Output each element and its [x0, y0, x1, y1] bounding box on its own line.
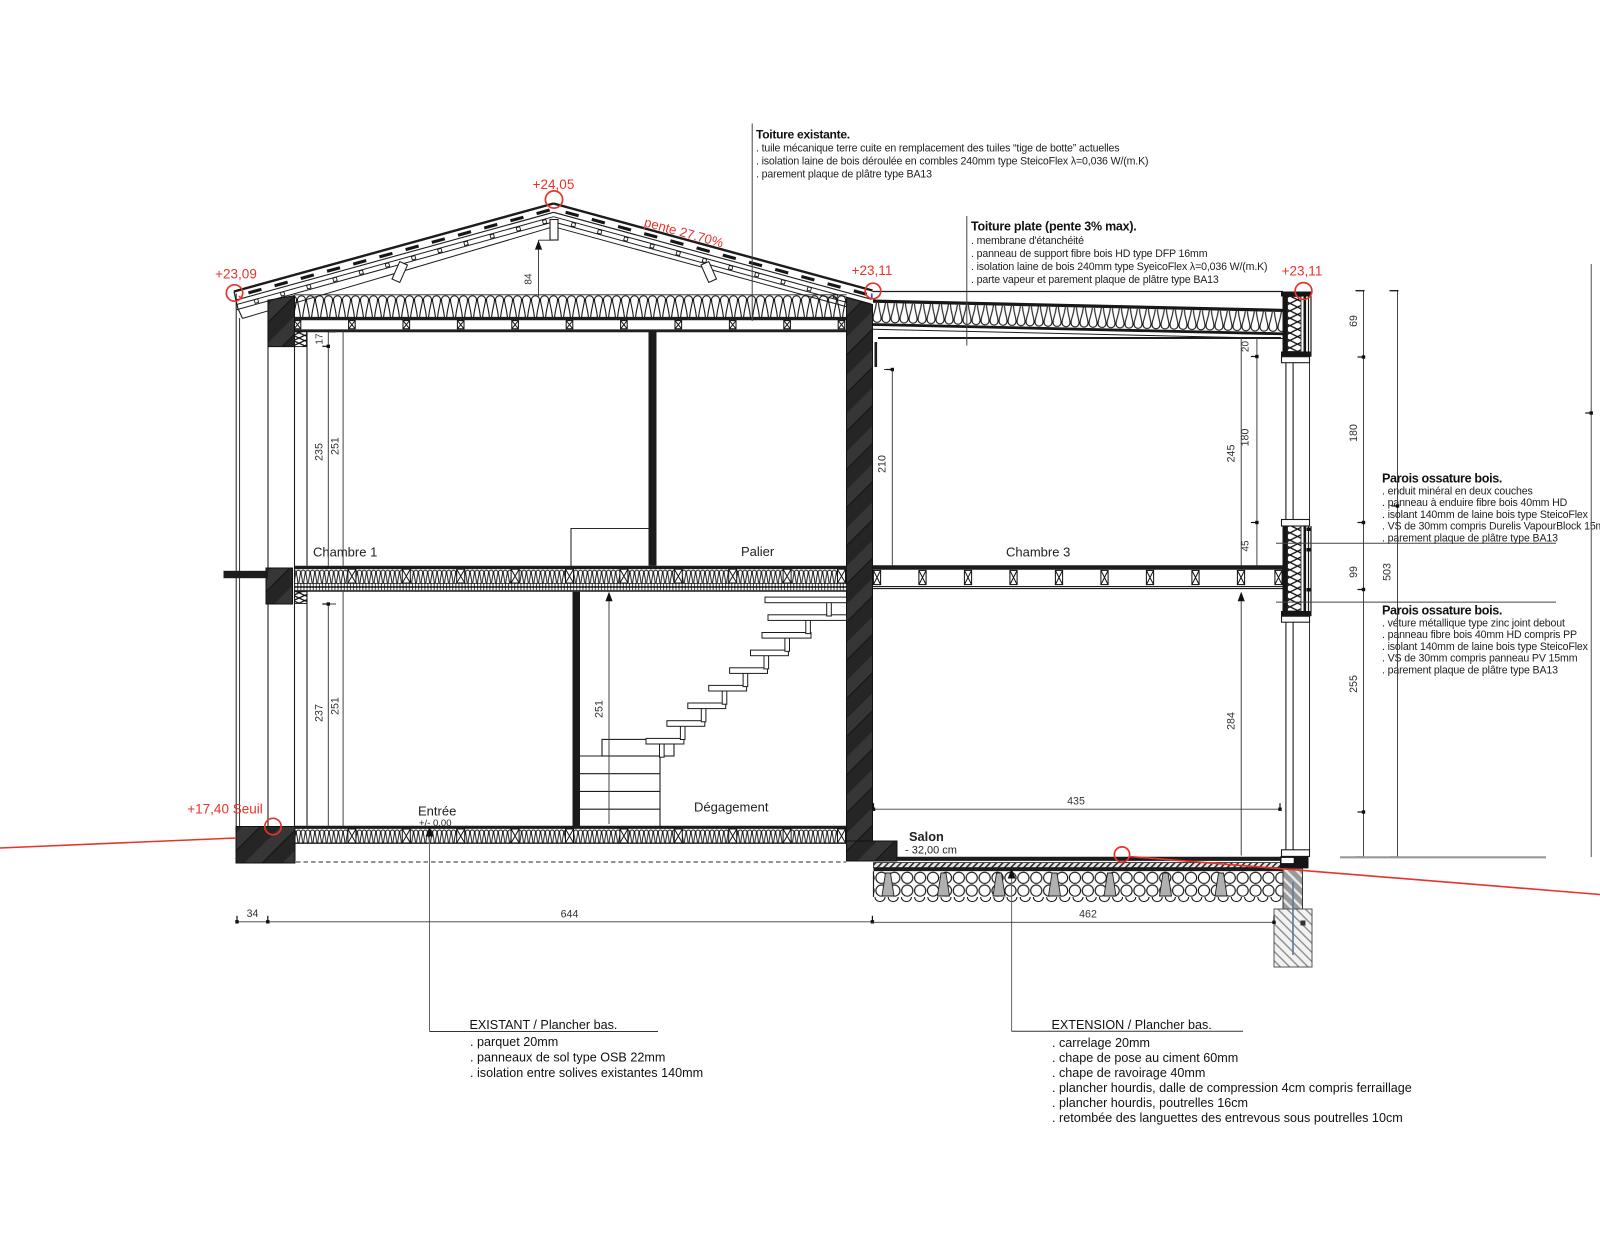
- svg-text:210: 210: [877, 455, 889, 473]
- svg-text:. tuile mécanique terre cuite: . tuile mécanique terre cuite en remplac…: [756, 143, 1119, 155]
- svg-text:Chambre 3: Chambre 3: [1006, 545, 1070, 560]
- svg-text:Salon: Salon: [909, 829, 944, 844]
- svg-text:. parement plaque de plâtre ty: . parement plaque de plâtre type BA13: [1382, 664, 1558, 676]
- svg-text:255: 255: [1348, 675, 1360, 693]
- svg-text:Palier: Palier: [741, 544, 775, 559]
- svg-text:. véture métallique type zinc: . véture métallique type zinc joint debo…: [1382, 618, 1565, 630]
- svg-text:. carrelage 20mm: . carrelage 20mm: [1052, 1036, 1150, 1050]
- svg-text:462: 462: [1079, 909, 1097, 921]
- svg-text:Toiture plate (pente 3% max).: Toiture plate (pente 3% max).: [971, 220, 1136, 234]
- svg-text:. membrane d'étanchéité: . membrane d'étanchéité: [971, 235, 1084, 247]
- svg-text:34: 34: [247, 908, 259, 920]
- svg-text:69: 69: [1348, 315, 1360, 327]
- svg-text:+23,11: +23,11: [852, 263, 893, 278]
- svg-text:284: 284: [1226, 712, 1238, 730]
- svg-text:Toiture existante.: Toiture existante.: [756, 128, 850, 142]
- svg-text:Chambre 1: Chambre 1: [313, 545, 377, 560]
- svg-text:Dégagement: Dégagement: [694, 800, 769, 815]
- svg-text:180: 180: [1348, 424, 1360, 442]
- svg-text:. chape de ravoirage 40mm: . chape de ravoirage 40mm: [1052, 1066, 1205, 1080]
- svg-text:99: 99: [1348, 566, 1360, 578]
- svg-text:+17,40 Seuil: +17,40 Seuil: [187, 802, 262, 817]
- svg-text:. enduit minéral en deux couch: . enduit minéral en deux couches: [1382, 486, 1533, 498]
- svg-text:. panneau fibre bois 40mm HD c: . panneau fibre bois 40mm HD compris PP: [1382, 629, 1577, 641]
- svg-text:. isolation entre solives exis: . isolation entre solives existantes 140…: [470, 1066, 703, 1080]
- svg-text:. isolant 140mm de laine bois: . isolant 140mm de laine bois type Steic…: [1382, 509, 1589, 521]
- svg-text:. plancher hourdis, dalle de c: . plancher hourdis, dalle de compression…: [1052, 1081, 1412, 1095]
- svg-text:. parement plaque de plâtre ty: . parement plaque de plâtre type BA13: [1382, 532, 1558, 544]
- svg-text:237: 237: [314, 704, 326, 722]
- svg-text:435: 435: [1067, 796, 1085, 808]
- svg-text:251: 251: [329, 437, 341, 455]
- svg-text:. parquet 20mm: . parquet 20mm: [470, 1035, 558, 1049]
- svg-text:251: 251: [329, 697, 341, 715]
- svg-text:. panneau à enduire fibre bois: . panneau à enduire fibre bois 40mm HD: [1382, 497, 1568, 509]
- svg-text:+23,09: +23,09: [215, 267, 257, 282]
- svg-text:EXISTANT / Plancher bas.: EXISTANT / Plancher bas.: [470, 1018, 618, 1032]
- svg-text:. plancher hourdis, poutrelles: . plancher hourdis, poutrelles 16cm: [1052, 1096, 1248, 1110]
- svg-text:644: 644: [561, 909, 579, 921]
- svg-text:+/- 0,00: +/- 0,00: [419, 818, 451, 829]
- svg-text:EXTENSION / Plancher bas.: EXTENSION / Plancher bas.: [1052, 1018, 1212, 1032]
- svg-text:Entrée: Entrée: [418, 804, 456, 819]
- svg-text:+24,05: +24,05: [533, 177, 575, 192]
- svg-text:. chape de pose au ciment 60mm: . chape de pose au ciment 60mm: [1052, 1051, 1238, 1065]
- svg-text:+23,11: +23,11: [1282, 264, 1323, 279]
- svg-text:. isolation laine de bois déro: . isolation laine de bois déroulée en co…: [756, 156, 1148, 168]
- svg-text:. parement plaque de plâtre ty: . parement plaque de plâtre type BA13: [756, 169, 932, 181]
- svg-text:. retombée des languettes des: . retombée des languettes des entrevous …: [1052, 1111, 1403, 1125]
- svg-text:251: 251: [594, 700, 606, 718]
- svg-text:. VS de 30mm compris panneau P: . VS de 30mm compris panneau PV 15mm: [1382, 653, 1578, 665]
- svg-text:180: 180: [1240, 429, 1252, 447]
- svg-text:45: 45: [1241, 540, 1252, 552]
- svg-text:. panneaux de sol type OSB 22m: . panneaux de sol type OSB 22mm: [470, 1050, 665, 1064]
- svg-text:. parte vapeur et parement pla: . parte vapeur et parement plaque de plâ…: [971, 274, 1219, 286]
- svg-text:503: 503: [1382, 563, 1394, 581]
- svg-text:. isolant 140mm de laine bois: . isolant 140mm de laine bois type Steic…: [1382, 641, 1589, 653]
- svg-text:- 32,00 cm: - 32,00 cm: [905, 845, 957, 857]
- svg-text:245: 245: [1226, 445, 1238, 463]
- svg-text:Parois ossature bois.: Parois ossature bois.: [1382, 472, 1502, 486]
- svg-text:. panneau de support fibre boi: . panneau de support fibre bois HD type …: [971, 248, 1208, 260]
- svg-text:17: 17: [315, 333, 326, 345]
- svg-text:84: 84: [524, 273, 535, 285]
- svg-text:. VS de 30mm compris Durelis V: . VS de 30mm compris Durelis VapourBlock…: [1382, 521, 1600, 533]
- svg-text:235: 235: [314, 443, 326, 461]
- svg-text:Parois ossature bois.: Parois ossature bois.: [1382, 604, 1502, 618]
- svg-text:. isolation laine de bois 240m: . isolation laine de bois 240mm type Sye…: [971, 261, 1267, 273]
- svg-text:20: 20: [1241, 341, 1252, 353]
